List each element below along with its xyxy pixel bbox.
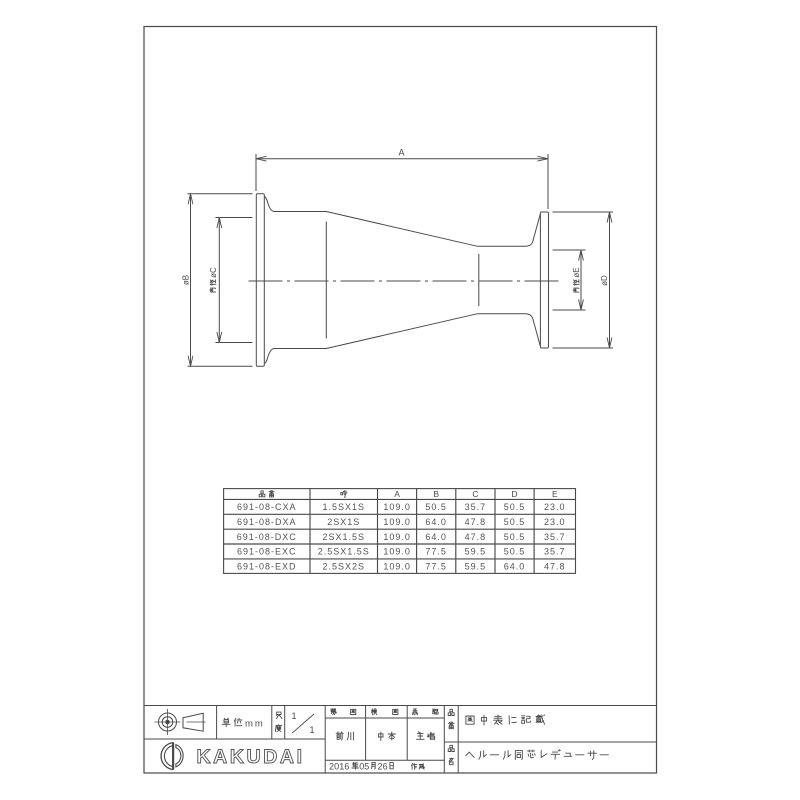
- svg-text:2016: 2016: [329, 761, 349, 771]
- svg-text:109.0: 109.0: [383, 561, 411, 571]
- svg-text:C: C: [472, 489, 478, 499]
- svg-text:35.7: 35.7: [544, 547, 566, 557]
- svg-text:35.7: 35.7: [465, 502, 487, 512]
- svg-text:109.0: 109.0: [383, 502, 411, 512]
- svg-text:47.8: 47.8: [465, 517, 487, 527]
- svg-text:23.0: 23.0: [544, 502, 566, 512]
- svg-text:A: A: [398, 148, 404, 158]
- svg-text:50.5: 50.5: [504, 547, 526, 557]
- svg-text:26: 26: [378, 761, 388, 771]
- svg-text:50.5: 50.5: [504, 532, 526, 542]
- svg-text:23.0: 23.0: [544, 517, 566, 527]
- svg-text:E: E: [552, 489, 558, 499]
- svg-text:64.0: 64.0: [425, 532, 447, 542]
- svg-text:05: 05: [359, 761, 369, 771]
- svg-text:64.0: 64.0: [425, 517, 447, 527]
- svg-text:691-08-EXD: 691-08-EXD: [237, 561, 297, 571]
- svg-text:691-08-CXA: 691-08-CXA: [237, 502, 297, 512]
- svg-text:50.5: 50.5: [425, 502, 447, 512]
- svg-text:691-08-EXC: 691-08-EXC: [237, 547, 297, 557]
- svg-text:109.0: 109.0: [383, 547, 411, 557]
- svg-text:1: 1: [291, 711, 296, 721]
- svg-text:1.5SX1S: 1.5SX1S: [323, 502, 366, 512]
- svg-text:77.5: 77.5: [425, 561, 447, 571]
- svg-text:2.5SX2S: 2.5SX2S: [323, 561, 366, 571]
- svg-text:1: 1: [309, 725, 314, 735]
- svg-text:2SX1S: 2SX1S: [327, 517, 360, 527]
- svg-text:691-08-DXC: 691-08-DXC: [237, 532, 297, 542]
- svg-text:KAKUDAI: KAKUDAI: [197, 746, 305, 768]
- svg-text:D: D: [511, 489, 517, 499]
- svg-text:2.5SX1.5S: 2.5SX1.5S: [318, 547, 370, 557]
- svg-text:50.5: 50.5: [504, 517, 526, 527]
- svg-text:64.0: 64.0: [504, 561, 526, 571]
- svg-text:109.0: 109.0: [383, 532, 411, 542]
- svg-text:øC: øC: [209, 267, 218, 278]
- svg-text:47.8: 47.8: [544, 561, 566, 571]
- svg-text:B: B: [433, 489, 439, 499]
- svg-text:59.5: 59.5: [465, 547, 487, 557]
- svg-text:59.5: 59.5: [465, 561, 487, 571]
- svg-text:77.5: 77.5: [425, 547, 447, 557]
- svg-text:øB: øB: [181, 275, 190, 285]
- svg-text:øE: øE: [572, 267, 581, 277]
- svg-text:109.0: 109.0: [383, 517, 411, 527]
- svg-text:2SX1.5S: 2SX1.5S: [323, 532, 366, 542]
- svg-text:50.5: 50.5: [504, 502, 526, 512]
- svg-text:A: A: [394, 489, 400, 499]
- svg-text:øD: øD: [600, 275, 609, 286]
- svg-text:35.7: 35.7: [544, 532, 566, 542]
- svg-text:47.8: 47.8: [465, 532, 487, 542]
- svg-text:691-08-DXA: 691-08-DXA: [237, 517, 297, 527]
- svg-text:mm: mm: [245, 718, 265, 729]
